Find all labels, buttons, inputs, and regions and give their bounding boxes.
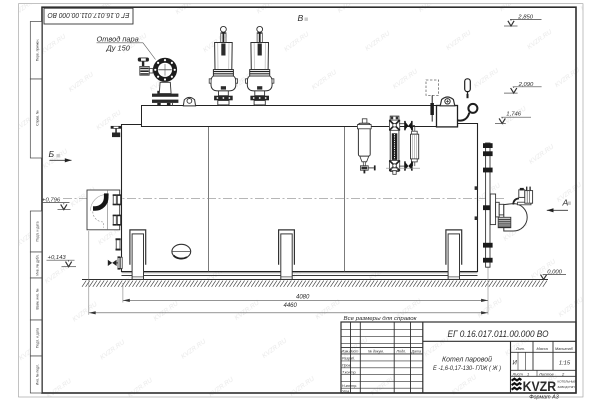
svg-text:Котел паровой: Котел паровой bbox=[442, 356, 492, 364]
svg-text:1,746: 1,746 bbox=[506, 112, 521, 118]
svg-text:ЗАВОД РЭП: ЗАВОД РЭП bbox=[558, 385, 575, 389]
svg-text:Утв.: Утв. bbox=[342, 390, 350, 394]
svg-text:Разраб.: Разраб. bbox=[342, 357, 355, 361]
svg-text:ЕГ 0.16.017.011.00.000 ВО: ЕГ 0.16.017.011.00.000 ВО bbox=[448, 329, 549, 339]
svg-text:Пров.: Пров. bbox=[342, 364, 351, 368]
svg-text:А: А bbox=[562, 197, 569, 207]
svg-text:4080: 4080 bbox=[296, 294, 310, 300]
svg-text:Справ. №: Справ. № bbox=[35, 110, 39, 126]
svg-text:№ докум.: № докум. bbox=[368, 350, 384, 354]
svg-text:Перв. примен.: Перв. примен. bbox=[35, 39, 39, 62]
svg-text:Листов: Листов bbox=[538, 371, 554, 376]
svg-text:И: И bbox=[513, 361, 518, 367]
svg-text:Формат А3: Формат А3 bbox=[529, 395, 559, 400]
svg-text:Инв. № подл.: Инв. № подл. bbox=[35, 364, 39, 385]
svg-text:Изм.Лист: Изм.Лист bbox=[342, 350, 359, 354]
svg-text:Дата: Дата bbox=[411, 350, 421, 354]
svg-text:Лит.: Лит. bbox=[515, 347, 525, 351]
svg-text:Инв. № дубл.: Инв. № дубл. bbox=[35, 254, 39, 275]
svg-text:Т.контр.: Т.контр. bbox=[342, 371, 357, 375]
svg-text:Лист: Лист bbox=[512, 371, 524, 376]
svg-text:Взам. инв. №: Взам. инв. № bbox=[35, 288, 39, 309]
svg-text:В: В bbox=[298, 13, 304, 23]
svg-text:1:15: 1:15 bbox=[559, 360, 571, 366]
svg-text:Масштаб: Масштаб bbox=[555, 347, 574, 351]
svg-text:4460: 4460 bbox=[284, 303, 298, 309]
svg-text:ЕГ 0.16.017.011.00.000 ВО: ЕГ 0.16.017.011.00.000 ВО bbox=[47, 11, 129, 20]
svg-text:Подп.: Подп. bbox=[397, 350, 407, 354]
svg-text:Н.контр.: Н.контр. bbox=[342, 384, 357, 388]
svg-text:Е -1,6-0,17-130- ГЛЖ ( Ж ): Е -1,6-0,17-130- ГЛЖ ( Ж ) bbox=[433, 366, 501, 372]
svg-text:Отвод пара: Отвод пара bbox=[97, 34, 139, 43]
svg-text:Все размеры для справок: Все размеры для справок bbox=[344, 316, 417, 322]
svg-text:Ду 150: Ду 150 bbox=[106, 43, 131, 52]
svg-text:Подп. и дата: Подп. и дата bbox=[35, 328, 39, 348]
svg-text:Б: Б bbox=[49, 149, 55, 159]
svg-text:Подп. и дата: Подп. и дата bbox=[35, 221, 39, 241]
svg-text:Масса: Масса bbox=[537, 347, 548, 351]
svg-text:KVZR: KVZR bbox=[523, 379, 557, 394]
svg-text:КОТЕЛЬНЫЙ: КОТЕЛЬНЫЙ bbox=[558, 380, 577, 384]
svg-text:1: 1 bbox=[527, 371, 529, 376]
